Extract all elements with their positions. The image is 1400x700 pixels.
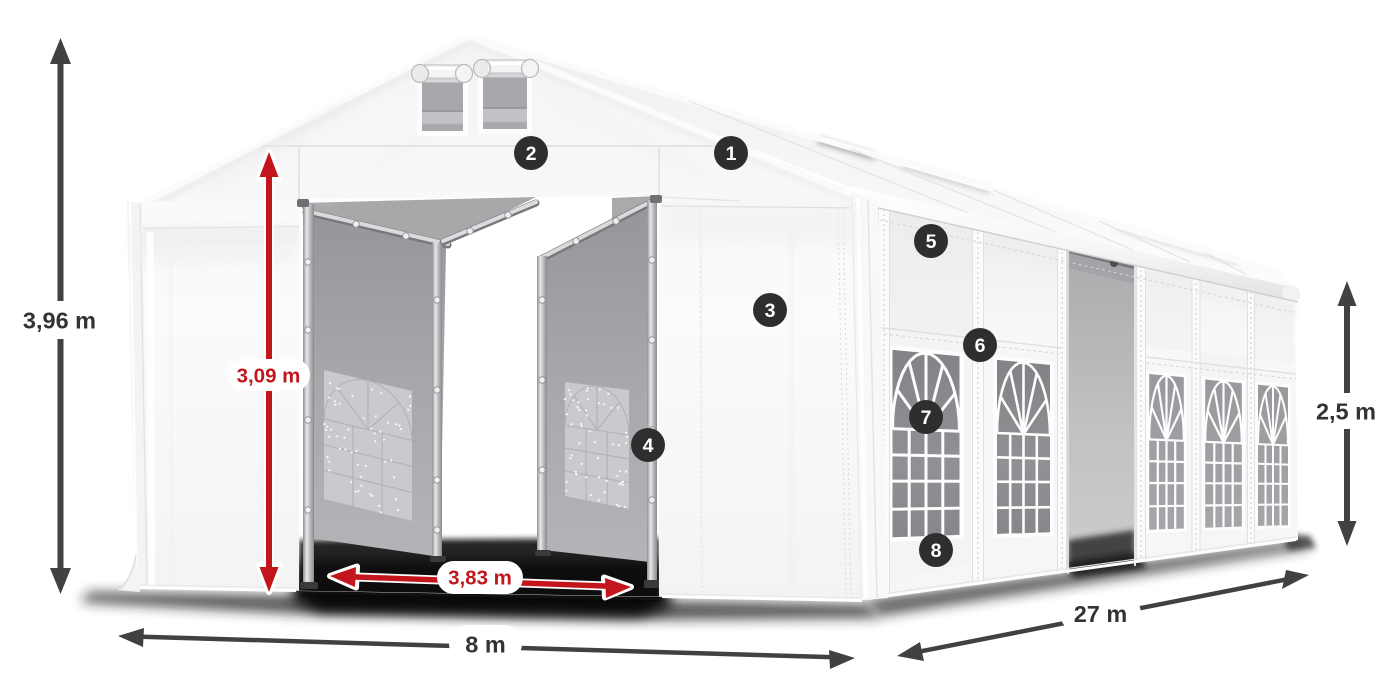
svg-text:2,5 m: 2,5 m <box>1316 399 1376 425</box>
svg-text:8 m: 8 m <box>465 632 506 658</box>
svg-text:3,96 m: 3,96 m <box>23 308 96 334</box>
svg-text:27 m: 27 m <box>1074 601 1128 627</box>
svg-text:6: 6 <box>975 335 986 357</box>
svg-text:8: 8 <box>931 540 942 562</box>
svg-text:1: 1 <box>726 143 737 165</box>
svg-text:2: 2 <box>526 143 537 165</box>
svg-text:5: 5 <box>926 231 937 253</box>
svg-text:7: 7 <box>921 407 932 429</box>
svg-text:3,09 m: 3,09 m <box>237 365 301 388</box>
svg-text:4: 4 <box>643 435 654 457</box>
svg-text:3: 3 <box>765 300 776 322</box>
svg-text:3,83 m: 3,83 m <box>448 567 512 590</box>
